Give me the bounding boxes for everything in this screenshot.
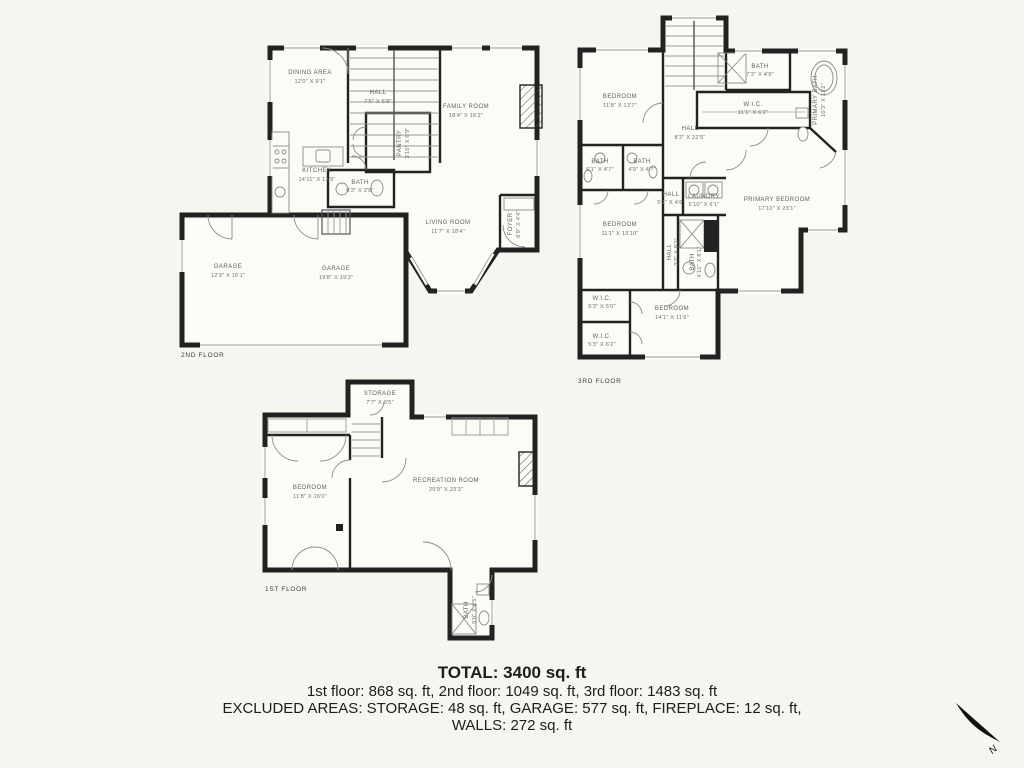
room-label-pantry: PANTRY	[397, 130, 403, 156]
room-dims-hall-v: 3'7" X 8'2"	[674, 238, 680, 266]
room-label-bedroom-s: BEDROOM	[655, 306, 689, 312]
floor-label-2nd: 2ND FLOOR	[181, 352, 225, 359]
floorplan-3rd-floor: BEDROOM 11'8" X 13'7" BATH 7'3" X 4'9" W…	[578, 18, 845, 385]
room-label-bedroom-w: BEDROOM	[603, 222, 637, 228]
room-label-garage-small: GARAGE	[214, 264, 242, 270]
room-dims-bath-left1: 6'1" X 4'7"	[586, 167, 614, 173]
room-label-bath-1st: BATH	[464, 601, 470, 618]
room-dims-bedroom-1st: 11'8" X 16'0"	[293, 494, 327, 500]
floor-label-1st: 1ST FLOOR	[265, 586, 307, 593]
room-label-bath-left1: BATH	[591, 159, 608, 165]
room-dims-bedroom-nw: 11'8" X 13'7"	[603, 103, 637, 109]
room-dims-foyer: 6'9" X 4'4"	[516, 210, 522, 238]
room-dims-bath-2nd: 8'3" X 2'8"	[346, 188, 374, 194]
room-dims-primary-bath: 10'3" X 11'2"	[821, 83, 827, 117]
summary-walls-line: WALLS: 272 sq. ft	[0, 717, 1024, 734]
room-label-hall-2nd: HALL	[370, 90, 387, 96]
summary-total: TOTAL: 3400 sq. ft	[0, 663, 1024, 683]
room-dims-hall-small: 5'1" X 4'6"	[657, 200, 685, 206]
room-label-hall-main: HALL	[682, 126, 699, 132]
room-dims-dining-area: 12'0" X 9'1"	[295, 79, 326, 85]
garage-walls	[182, 215, 406, 345]
room-label-recreation: RECREATION ROOM	[413, 478, 479, 484]
room-label-wic-2: W.I.C.	[592, 334, 611, 340]
room-dims-family-room: 18'4" X 16'2"	[449, 113, 483, 119]
room-label-garage-large: GARAGE	[322, 266, 350, 272]
room-dims-hall-main: 8'2" X 22'5"	[675, 135, 706, 141]
room-dims-recreation: 25'9" X 23'3"	[429, 487, 463, 493]
room-label-bath-left2: BATH	[633, 159, 650, 165]
room-dims-bedroom-s: 14'1" X 11'6"	[655, 315, 689, 321]
room-dims-storage: 7'7" X 9'5"	[366, 400, 394, 406]
room-dims-hall-2nd: 7'5" X 5'8"	[364, 99, 392, 105]
fireplace-icon	[519, 452, 534, 486]
room-dims-wic-1: 5'3" X 5'0"	[588, 304, 616, 310]
floorplan-2nd-floor: DINING AREA 12'0" X 9'1" HALL 7'5" X 5'8…	[181, 48, 542, 359]
room-label-bath-top: BATH	[751, 64, 768, 70]
room-label-storage: STORAGE	[364, 391, 396, 397]
room-dims-garage-small: 12'3" X 16'1"	[211, 273, 245, 279]
room-label-living-room: LIVING ROOM	[426, 220, 471, 226]
room-dims-bedroom-w: 11'1" X 13'10"	[601, 231, 638, 237]
area-summary: TOTAL: 3400 sq. ft 1st floor: 868 sq. ft…	[0, 663, 1024, 734]
room-label-hall-small: HALL	[663, 192, 680, 198]
room-dims-bath-left2: 4'9" X 4'7"	[628, 167, 656, 173]
floor-label-3rd: 3RD FLOOR	[578, 378, 622, 385]
floorplan-1st-floor: STORAGE 7'7" X 9'5" BEDROOM 11'8" X 16'0…	[265, 382, 535, 638]
room-label-bedroom-1st: BEDROOM	[293, 485, 327, 491]
fireplace-icon	[520, 85, 542, 128]
room-label-dining-area: DINING AREA	[288, 70, 332, 76]
floorplan-drawing: DINING AREA 12'0" X 9'1" HALL 7'5" X 5'8…	[0, 0, 1024, 768]
room-dims-bath-1st: 5'0" X 8'5"	[472, 596, 478, 624]
room-label-primary-bath: PRIMARY BATH	[813, 75, 819, 125]
room-label-bath-v: BATH	[690, 253, 696, 270]
room-label-wic-1: W.I.C.	[592, 296, 611, 302]
summary-excluded-line: EXCLUDED AREAS: STORAGE: 48 sq. ft, GARA…	[0, 700, 1024, 717]
room-dims-pantry: 3'10" X 6'9"	[405, 128, 411, 159]
room-dims-wic-2: 5'3" X 6'2"	[588, 342, 616, 348]
room-dims-wic-top: 11'1" X 6'2"	[738, 110, 769, 116]
room-dims-primary-bedroom: 17'10" X 23'1"	[758, 206, 796, 212]
room-label-kitchen: KITCHEN	[302, 168, 332, 174]
exterior-walls	[265, 382, 535, 638]
room-label-wic-top: W.I.C.	[743, 102, 762, 108]
room-label-bath-2nd: BATH	[351, 180, 368, 186]
chase-void	[704, 220, 718, 252]
room-dims-bath-top: 7'3" X 4'9"	[746, 72, 774, 78]
room-dims-laundry: 5'10" X 6'1"	[689, 202, 720, 208]
room-dims-garage-large: 19'8" X 19'3"	[319, 275, 353, 281]
room-dims-bath-v: 4'10" X 8'1"	[697, 247, 703, 278]
room-label-laundry: LAUNDRY	[688, 194, 720, 200]
room-label-primary-bedroom: PRIMARY BEDROOM	[744, 197, 811, 203]
floor-outlet	[336, 524, 343, 531]
summary-floors-line: 1st floor: 868 sq. ft, 2nd floor: 1049 s…	[0, 683, 1024, 700]
room-dims-kitchen: 14'11" X 13'9"	[298, 177, 335, 183]
floorplan-page: DINING AREA 12'0" X 9'1" HALL 7'5" X 5'8…	[0, 0, 1024, 768]
room-dims-living-room: 11'7" X 18'4"	[431, 229, 465, 235]
room-label-bedroom-nw: BEDROOM	[603, 94, 637, 100]
room-label-family-room: FAMILY ROOM	[443, 104, 489, 110]
room-label-hall-v: HALL	[667, 243, 673, 260]
north-label: N	[987, 743, 1000, 757]
room-label-foyer: FOYER	[508, 212, 514, 235]
